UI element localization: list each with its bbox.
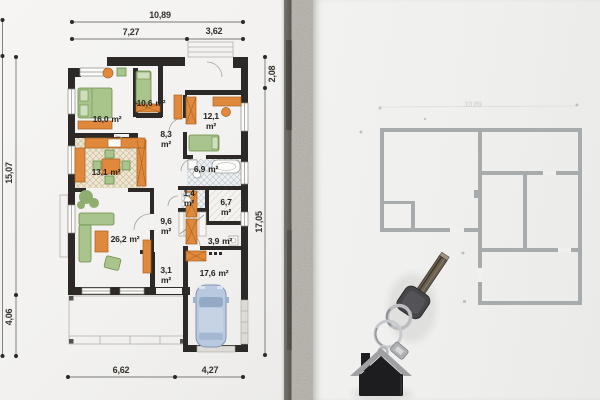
photo-of-blueprints: 10,89 7,27 3,62 15,07 4,06 2,08 17,05 6,… [0, 0, 600, 400]
second-paper [313, 0, 600, 400]
blueprint-paper [0, 0, 288, 400]
paper-edge-shadow [281, 0, 291, 400]
